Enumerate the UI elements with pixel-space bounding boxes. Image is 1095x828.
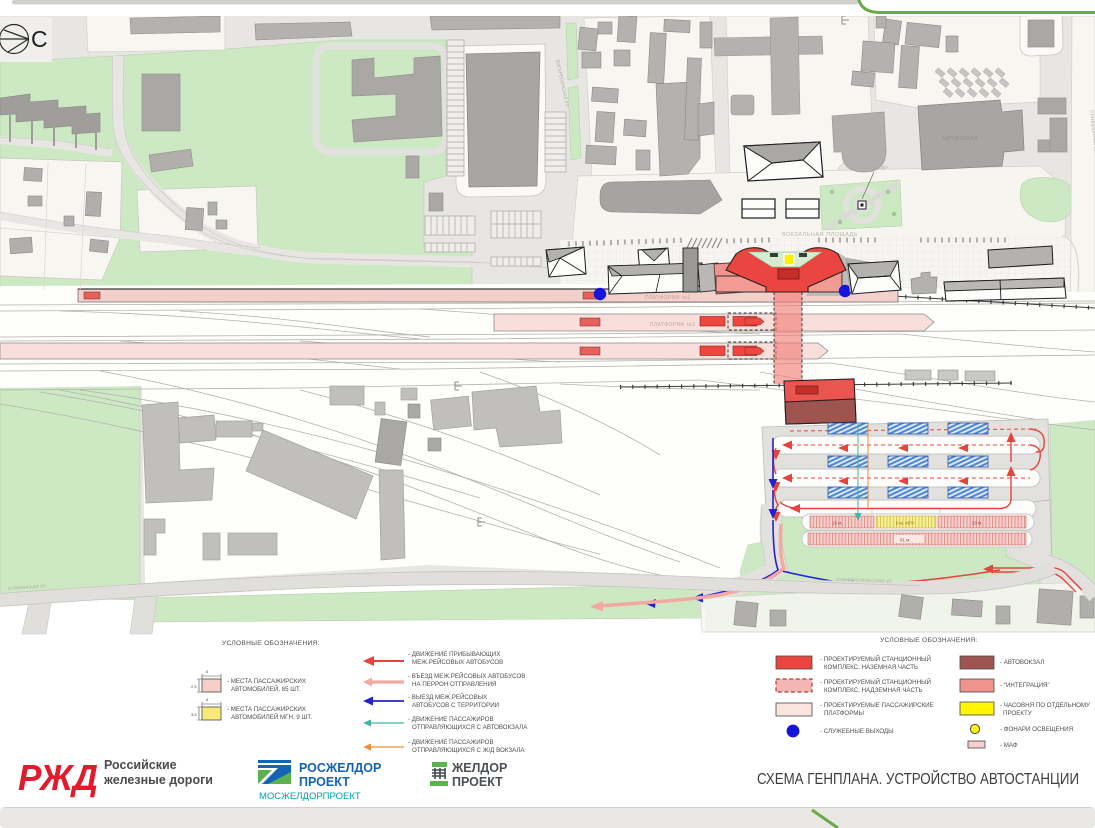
svg-text:УСЛОВНЫЕ ОБОЗНАЧЕНИЯ:: УСЛОВНЫЕ ОБОЗНАЧЕНИЯ: xyxy=(880,637,978,644)
svg-text:ЖЕЛДОР: ЖЕЛДОР xyxy=(451,761,507,775)
svg-text:- ПРОЕКТИРУЕМЫЕ ПАССАЖИРСКИЕ: - ПРОЕКТИРУЕМЫЕ ПАССАЖИРСКИЕ xyxy=(820,702,934,709)
svg-text:ПАМЯТНИК: ПАМЯТНИК xyxy=(860,157,886,162)
svg-text:- МАФ: - МАФ xyxy=(1000,742,1018,749)
svg-text:СХЕМА ГЕНПЛАНА. УСТРОЙСТВО АВТ: СХЕМА ГЕНПЛАНА. УСТРОЙСТВО АВТОСТАНЦИИ xyxy=(757,769,1079,788)
svg-text:2.5: 2.5 xyxy=(191,684,197,689)
svg-text:- ДВИЖЕНИЕ ПАССАЖИРОВ: - ДВИЖЕНИЕ ПАССАЖИРОВ xyxy=(408,716,494,723)
svg-text:С.И. МАМОНТОВУ: С.И. МАМОНТОВУ xyxy=(848,165,888,170)
svg-text:ПЛАТФОРМЫ: ПЛАТФОРМЫ xyxy=(824,710,864,717)
svg-text:ПЛАТФОРМА №2: ПЛАТФОРМА №2 xyxy=(650,322,696,328)
svg-text:- ПРОЕКТИРУЕМЫЙ СТАНЦИОННЫЙ: - ПРОЕКТИРУЕМЫЙ СТАНЦИОННЫЙ xyxy=(820,678,931,686)
svg-text:ПРОЕКТ: ПРОЕКТ xyxy=(452,775,503,789)
svg-text:20 м.: 20 м. xyxy=(972,521,982,526)
svg-text:АВТОВОКЗАЛ: АВТОВОКЗАЛ xyxy=(942,136,978,142)
svg-text:- ЧАСОВНЯ ПО ОТДЕЛЬНОМУ: - ЧАСОВНЯ ПО ОТДЕЛЬНОМУ xyxy=(1000,702,1090,709)
svg-text:81 м.: 81 м. xyxy=(900,538,910,543)
svg-text:Российские: Российские xyxy=(104,758,177,772)
svg-text:- МЕСТА ПАССАЖИРСКИХ: - МЕСТА ПАССАЖИРСКИХ xyxy=(227,678,306,685)
svg-text:железные дороги: железные дороги xyxy=(103,773,213,787)
svg-text:АВТОМОБИЛЕЙ МГН. 9 ШТ.: АВТОМОБИЛЕЙ МГН. 9 ШТ. xyxy=(231,713,312,721)
svg-text:АВТОБУСОВ С ТЕРРИТОРИИ: АВТОБУСОВ С ТЕРРИТОРИИ xyxy=(412,702,499,709)
svg-text:МЕЖ.РЕЙСОВЫХ АВТОБУСОВ: МЕЖ.РЕЙСОВЫХ АВТОБУСОВ xyxy=(412,658,503,666)
svg-text:РОСЖЕЛДОР: РОСЖЕЛДОР xyxy=(299,761,381,775)
svg-text:- АВТОВОКЗАЛ: - АВТОВОКЗАЛ xyxy=(1000,659,1044,666)
svg-text:ОТПРАВЛЯЮЩИХСЯ С АВТОВОКЗАЛА: ОТПРАВЛЯЮЩИХСЯ С АВТОВОКЗАЛА xyxy=(412,724,528,731)
svg-text:- МЕСТА ПАССАЖИРСКИХ: - МЕСТА ПАССАЖИРСКИХ xyxy=(227,706,306,713)
svg-text:УСЛОВНЫЕ ОБОЗНАЧЕНИЯ:: УСЛОВНЫЕ ОБОЗНАЧЕНИЯ: xyxy=(222,640,320,647)
svg-text:- ВЫЕЗД МЕЖ.РЕЙСОВЫХ: - ВЫЕЗД МЕЖ.РЕЙСОВЫХ xyxy=(408,693,487,701)
svg-text:- ДВИЖЕНИЕ ПАССАЖИРОВ: - ДВИЖЕНИЕ ПАССАЖИРОВ xyxy=(408,739,494,746)
svg-text:АВТОМОБИЛЕЙ, 85 ШТ.: АВТОМОБИЛЕЙ, 85 ШТ. xyxy=(231,685,301,693)
svg-text:ПРОЕКТ: ПРОЕКТ xyxy=(299,775,350,789)
svg-text:ОТПРАВЛЯЮЩИХСЯ С Ж/Д ВОКЗАЛА: ОТПРАВЛЯЮЩИХСЯ С Ж/Д ВОКЗАЛА xyxy=(412,747,525,754)
svg-text:КОМПЛЕКС. НАДЗЕМНАЯ ЧАСТЬ: КОМПЛЕКС. НАДЗЕМНАЯ ЧАСТЬ xyxy=(824,687,923,694)
svg-text:9 м. МГН: 9 м. МГН xyxy=(896,521,914,526)
svg-text:C: C xyxy=(31,26,48,52)
svg-text:РЖД: РЖД xyxy=(18,757,98,798)
svg-text:- ВЪЕЗД МЕЖ.РЕЙСОВЫХ АВТОБУСОВ: - ВЪЕЗД МЕЖ.РЕЙСОВЫХ АВТОБУСОВ xyxy=(408,672,525,680)
svg-text:3.6: 3.6 xyxy=(191,712,197,717)
svg-text:- СЛУЖЕБНЫЕ ВЫХОДЫ: - СЛУЖЕБНЫЕ ВЫХОДЫ xyxy=(820,728,894,735)
svg-text:МОСЖЕЛДОРПРОЕКТ: МОСЖЕЛДОРПРОЕКТ xyxy=(259,791,361,802)
svg-text:НА ПЕРРОН ОТПРАВЛЕНИЯ: НА ПЕРРОН ОТПРАВЛЕНИЯ xyxy=(412,681,497,688)
svg-text:- "ИНТЕГРАЦИЯ": - "ИНТЕГРАЦИЯ" xyxy=(1000,682,1050,689)
svg-text:- ФОНАРИ ОСВЕЩЕНИЯ: - ФОНАРИ ОСВЕЩЕНИЯ xyxy=(1000,726,1073,733)
svg-text:15 м.: 15 м. xyxy=(832,521,842,526)
svg-text:- ПРОЕКТИРУЕМЫЙ СТАНЦИОННЫЙ: - ПРОЕКТИРУЕМЫЙ СТАНЦИОННЫЙ xyxy=(820,655,931,663)
svg-text:КОМПЛЕКС. НАЗЕМНАЯ ЧАСТЬ: КОМПЛЕКС. НАЗЕМНАЯ ЧАСТЬ xyxy=(824,664,918,671)
svg-text:- ДВИЖЕНИЕ ПРИБЫВАЮЩИХ: - ДВИЖЕНИЕ ПРИБЫВАЮЩИХ xyxy=(408,651,500,658)
svg-text:ПРОЕКТУ: ПРОЕКТУ xyxy=(1003,710,1032,717)
svg-text:ПЛАТФОРМА №1: ПЛАТФОРМА №1 xyxy=(645,295,691,301)
svg-text:ВОКЗАЛЬНАЯ ПЛОЩАДЬ: ВОКЗАЛЬНАЯ ПЛОЩАДЬ xyxy=(782,232,858,238)
